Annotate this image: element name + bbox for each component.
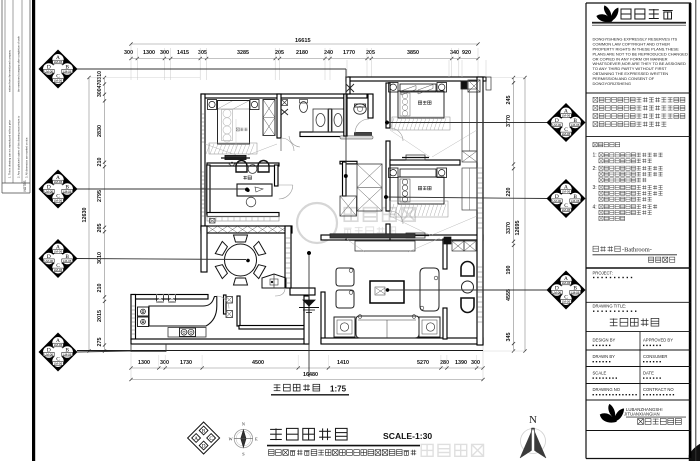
svg-text:205: 205 [97,224,103,233]
svg-text:DRAWING TITLE:: DRAWING TITLE: [593,304,627,309]
svg-text:2795: 2795 [97,190,103,202]
svg-text:-Bathroom-: -Bathroom- [622,247,652,254]
svg-text:A: A [194,436,198,442]
svg-text:LM-06: LM-06 [54,180,63,184]
svg-text:1. This is drawing can not rep: 1. This is drawing can not reproduced wi… [8,120,12,178]
svg-text:LM-06: LM-06 [63,259,72,263]
svg-text:2830: 2830 [97,125,103,137]
svg-text:300: 300 [160,360,169,366]
svg-text:2015: 2015 [97,310,103,322]
svg-text:LM-06: LM-06 [45,189,54,193]
svg-text:PROJECT:: PROJECT: [593,271,613,276]
svg-text:280: 280 [440,360,449,366]
svg-text:LM-06: LM-06 [54,79,63,83]
svg-text:3. All dimension are marked on: 3. All dimension are marked on site. [25,137,29,178]
svg-text:300: 300 [471,360,480,366]
svg-text:LM-06: LM-06 [562,114,571,118]
svg-text:LM-06: LM-06 [45,259,54,263]
svg-text:210: 210 [97,158,103,167]
svg-text:LM-06: LM-06 [54,268,63,272]
svg-text:210: 210 [97,284,103,293]
svg-text:NOTES: NOTES [23,181,27,192]
svg-text:920: 920 [462,50,471,56]
svg-text:LM-06: LM-06 [562,281,571,285]
svg-text:JITUANXIANGIAN: JITUANXIANGIAN [624,412,660,417]
svg-text:205: 205 [366,50,375,56]
svg-text:305: 305 [198,50,207,56]
svg-text:CONTRACT NO: CONTRACT NO [643,387,674,392]
svg-text:LM-06: LM-06 [54,343,63,347]
svg-text:SCALE-1:30: SCALE-1:30 [383,431,432,441]
svg-text:LM-06: LM-06 [553,123,562,127]
svg-text:1410: 1410 [337,360,349,366]
svg-text:DESIGN BY: DESIGN BY [593,338,616,343]
svg-text:CONSUMER: CONSUMER [643,354,667,359]
svg-text:2180: 2180 [296,50,308,56]
svg-text:240: 240 [324,50,333,56]
svg-text:LM-06: LM-06 [54,362,63,366]
svg-text:1:75: 1:75 [330,385,347,394]
svg-text:LM-06: LM-06 [45,352,54,356]
svg-text:LM-06: LM-06 [63,189,72,193]
svg-text:12695: 12695 [515,221,521,236]
svg-text:B: B [202,428,206,434]
svg-text:LM-06: LM-06 [45,69,54,73]
svg-text:4500: 4500 [252,360,264,366]
svg-text:LM-06: LM-06 [562,190,571,194]
svg-text:N: N [242,421,245,426]
svg-text:LM-06: LM-06 [562,208,571,212]
svg-text:300470310: 300470310 [97,71,103,97]
svg-text:245: 245 [506,96,512,105]
svg-text:LM-06: LM-06 [63,69,72,73]
svg-text:2. Any duplicated copies of th: 2. Any duplicated copies of this drawing… [17,115,21,178]
svg-text:C: C [209,436,213,442]
svg-text:LM-06: LM-06 [571,290,580,294]
svg-text:16480: 16480 [303,372,318,378]
svg-text:D: D [202,443,206,449]
svg-text:DRAWN BY: DRAWN BY [593,354,616,359]
svg-text:1300: 1300 [143,50,155,56]
svg-text:345: 345 [506,333,512,342]
svg-text:DATE: DATE [643,371,654,376]
svg-text:N: N [529,414,537,426]
svg-text:LM-06: LM-06 [63,352,72,356]
svg-text:E: E [255,436,258,441]
svg-text:1:: 1: [593,153,597,159]
svg-text:3:: 3: [593,185,597,191]
svg-text:LM-06: LM-06 [553,290,562,294]
svg-text:4:: 4: [593,204,597,210]
svg-text:1390: 1390 [455,360,467,366]
svg-text:LM-06: LM-06 [571,199,580,203]
svg-text:DONGYORIZSHENG: DONGYORIZSHENG [593,81,631,86]
svg-text:16615: 16615 [295,38,311,44]
svg-text:1300: 1300 [138,360,150,366]
svg-text:LM-06: LM-06 [562,300,571,304]
svg-text:LM-06: LM-06 [54,250,63,254]
svg-text:12630: 12630 [82,208,88,223]
svg-text:4555: 4555 [506,289,512,301]
svg-text:5270: 5270 [417,360,429,366]
svg-text:LM-06: LM-06 [553,199,562,203]
svg-text:3850: 3850 [407,50,419,56]
svg-text:SCALE: SCALE [593,371,607,376]
svg-text:1730: 1730 [180,360,192,366]
svg-text:LM-06: LM-06 [54,199,63,203]
svg-text:3285: 3285 [237,50,249,56]
svg-text:LM-06: LM-06 [54,60,63,64]
svg-text:the mentioned company after co: the mentioned company after completion o… [17,35,21,92]
svg-text:LM-06: LM-06 [562,132,571,136]
svg-text:275: 275 [97,338,103,347]
svg-text:DRAWING NO: DRAWING NO [593,387,621,392]
svg-text:3370: 3370 [506,222,512,234]
svg-text:3010: 3010 [97,252,103,264]
svg-text:2:: 2: [593,166,597,172]
svg-text:LM-06: LM-06 [571,123,580,127]
svg-text:1770: 1770 [343,50,355,56]
svg-text:written from the mentioned com: written from the mentioned company [8,49,12,92]
svg-text:220: 220 [506,188,512,197]
svg-text:190: 190 [506,266,512,275]
svg-text:W: W [229,436,233,441]
svg-text:APPROVED BY: APPROVED BY [643,338,673,343]
svg-text:300: 300 [124,50,133,56]
svg-text:340: 340 [450,50,459,56]
svg-text:3770: 3770 [506,115,512,127]
svg-text:1415: 1415 [177,50,189,56]
